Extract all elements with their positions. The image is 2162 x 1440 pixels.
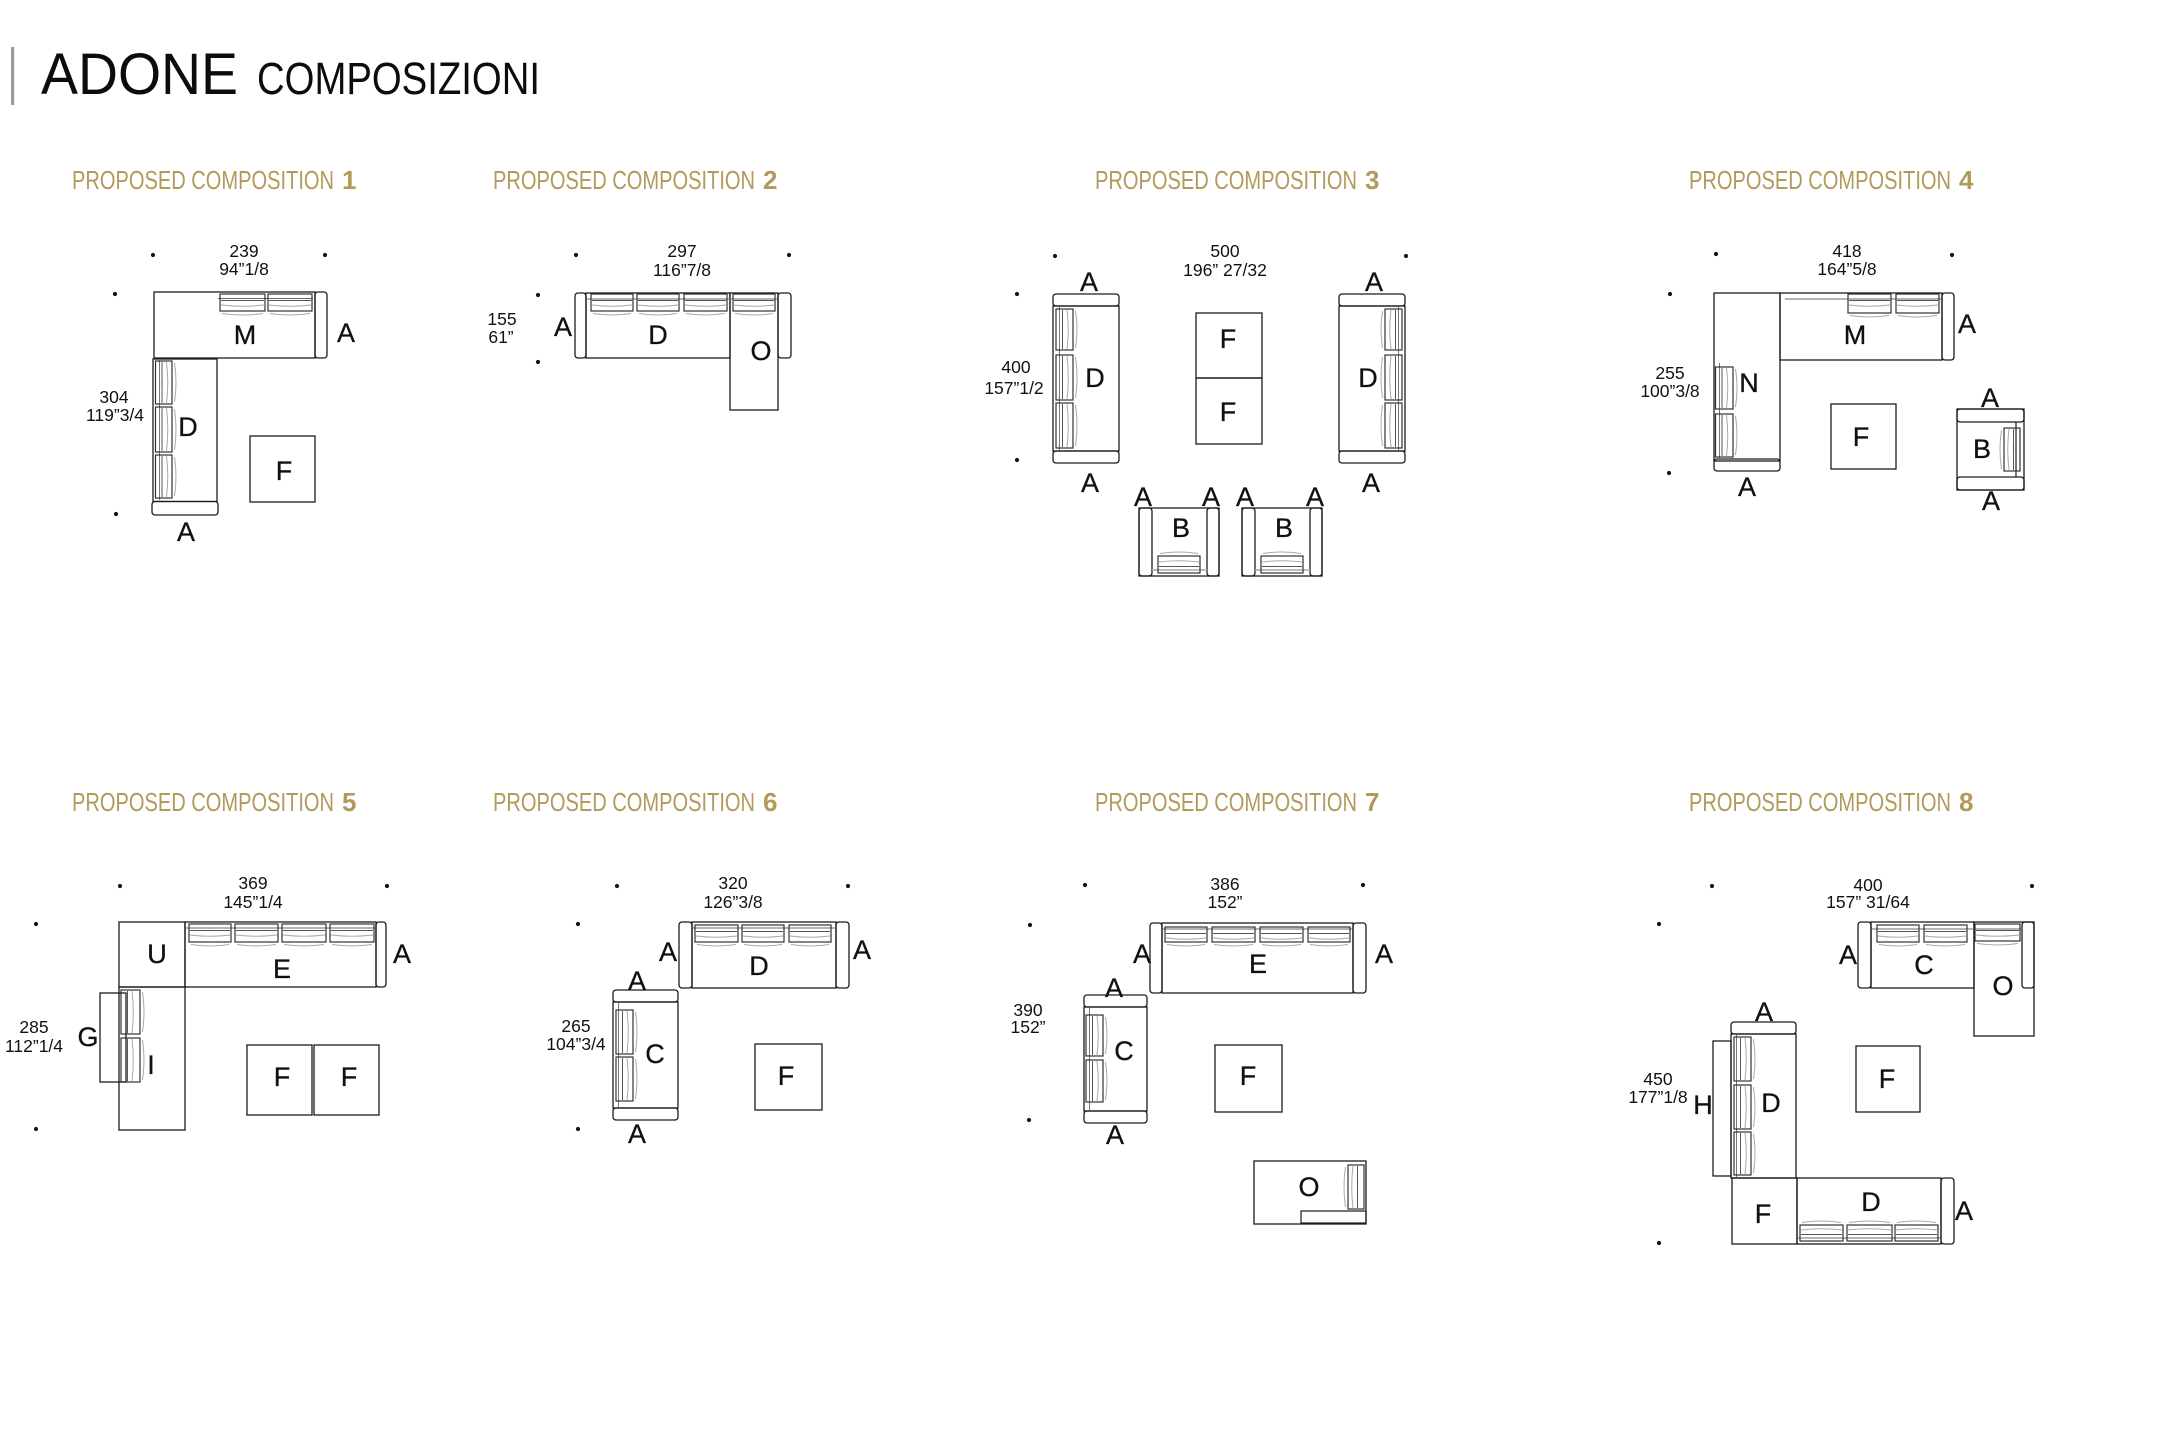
svg-text:61”: 61” bbox=[488, 327, 513, 347]
svg-text:255: 255 bbox=[1655, 363, 1684, 383]
svg-text:265: 265 bbox=[561, 1016, 590, 1036]
svg-text:A: A bbox=[1958, 309, 1976, 339]
svg-text:5: 5 bbox=[342, 787, 356, 817]
svg-text:PROPOSED COMPOSITION: PROPOSED COMPOSITION bbox=[72, 165, 334, 195]
svg-text:A: A bbox=[1981, 383, 1999, 413]
svg-text:386: 386 bbox=[1210, 874, 1239, 894]
svg-text:F: F bbox=[778, 1061, 795, 1091]
svg-text:104”3/4: 104”3/4 bbox=[546, 1034, 606, 1054]
svg-text:D: D bbox=[749, 951, 769, 981]
svg-text:D: D bbox=[178, 412, 198, 442]
svg-text:196” 27/32: 196” 27/32 bbox=[1183, 260, 1267, 280]
svg-text:F: F bbox=[1220, 324, 1237, 354]
svg-text:A: A bbox=[393, 939, 411, 969]
svg-text:A: A bbox=[1755, 997, 1773, 1027]
svg-text:PROPOSED COMPOSITION: PROPOSED COMPOSITION bbox=[1095, 787, 1357, 817]
svg-text:112”1/4: 112”1/4 bbox=[5, 1036, 63, 1056]
svg-text:A: A bbox=[1105, 973, 1123, 1003]
svg-text:B: B bbox=[1172, 513, 1190, 543]
svg-text:D: D bbox=[1861, 1187, 1881, 1217]
svg-text:A: A bbox=[1982, 486, 2000, 516]
svg-text:COMPOSIZIONI: COMPOSIZIONI bbox=[257, 53, 540, 104]
svg-text:PROPOSED COMPOSITION: PROPOSED COMPOSITION bbox=[1689, 165, 1951, 195]
svg-text:ADONE: ADONE bbox=[41, 42, 238, 107]
svg-text:D: D bbox=[1761, 1088, 1781, 1118]
svg-text:F: F bbox=[341, 1062, 358, 1092]
svg-text:126”3/8: 126”3/8 bbox=[703, 892, 762, 912]
svg-text:A: A bbox=[853, 935, 871, 965]
svg-text:G: G bbox=[77, 1022, 98, 1052]
svg-text:F: F bbox=[1879, 1064, 1896, 1094]
svg-text:D: D bbox=[1085, 363, 1105, 393]
svg-text:F: F bbox=[276, 456, 293, 486]
svg-text:6: 6 bbox=[763, 787, 777, 817]
svg-text:239: 239 bbox=[229, 241, 258, 261]
svg-text:116”7/8: 116”7/8 bbox=[653, 260, 711, 280]
svg-text:F: F bbox=[274, 1062, 291, 1092]
svg-text:418: 418 bbox=[1832, 241, 1861, 261]
svg-text:B: B bbox=[1973, 434, 1991, 464]
svg-text:164”5/8: 164”5/8 bbox=[1817, 259, 1876, 279]
svg-text:157” 31/64: 157” 31/64 bbox=[1826, 892, 1910, 912]
svg-text:I: I bbox=[147, 1050, 155, 1080]
svg-text:PROPOSED COMPOSITION: PROPOSED COMPOSITION bbox=[493, 165, 755, 195]
svg-text:400: 400 bbox=[1001, 357, 1030, 377]
svg-text:155: 155 bbox=[487, 309, 516, 329]
svg-text:A: A bbox=[1955, 1196, 1973, 1226]
svg-text:152”: 152” bbox=[1207, 892, 1242, 912]
svg-text:450: 450 bbox=[1643, 1069, 1672, 1089]
svg-text:F: F bbox=[1853, 422, 1870, 452]
svg-text:500: 500 bbox=[1210, 241, 1239, 261]
svg-text:C: C bbox=[1114, 1036, 1134, 1066]
svg-text:A: A bbox=[659, 937, 677, 967]
svg-text:D: D bbox=[1358, 363, 1378, 393]
svg-text:D: D bbox=[648, 320, 668, 350]
svg-text:A: A bbox=[1133, 939, 1151, 969]
svg-text:A: A bbox=[1080, 267, 1098, 297]
svg-text:94”1/8: 94”1/8 bbox=[219, 259, 269, 279]
svg-text:E: E bbox=[273, 954, 291, 984]
svg-text:100”3/8: 100”3/8 bbox=[1640, 381, 1699, 401]
svg-text:N: N bbox=[1739, 368, 1759, 398]
svg-text:A: A bbox=[1839, 940, 1857, 970]
svg-text:A: A bbox=[1134, 482, 1152, 512]
svg-text:A: A bbox=[1081, 468, 1099, 498]
svg-text:A: A bbox=[1306, 482, 1324, 512]
svg-text:A: A bbox=[628, 1119, 646, 1149]
svg-text:320: 320 bbox=[718, 873, 747, 893]
svg-text:A: A bbox=[1202, 482, 1220, 512]
svg-text:E: E bbox=[1249, 949, 1267, 979]
svg-text:285: 285 bbox=[19, 1017, 48, 1037]
svg-text:A: A bbox=[1106, 1120, 1124, 1150]
svg-text:119”3/4: 119”3/4 bbox=[86, 405, 144, 425]
svg-text:O: O bbox=[1992, 971, 2013, 1001]
svg-text:PROPOSED COMPOSITION: PROPOSED COMPOSITION bbox=[72, 787, 334, 817]
svg-text:A: A bbox=[1375, 939, 1393, 969]
svg-text:A: A bbox=[1236, 482, 1254, 512]
svg-text:A: A bbox=[1738, 472, 1756, 502]
svg-text:A: A bbox=[554, 312, 572, 342]
svg-text:1: 1 bbox=[342, 165, 356, 195]
svg-text:C: C bbox=[645, 1039, 665, 1069]
svg-text:7: 7 bbox=[1365, 787, 1379, 817]
svg-text:PROPOSED COMPOSITION: PROPOSED COMPOSITION bbox=[493, 787, 755, 817]
svg-text:PROPOSED COMPOSITION: PROPOSED COMPOSITION bbox=[1095, 165, 1357, 195]
svg-text:A: A bbox=[1365, 267, 1383, 297]
svg-text:369: 369 bbox=[238, 873, 267, 893]
svg-text:A: A bbox=[1362, 468, 1380, 498]
svg-text:A: A bbox=[177, 517, 195, 547]
svg-text:A: A bbox=[337, 318, 355, 348]
svg-text:O: O bbox=[750, 336, 771, 366]
svg-text:4: 4 bbox=[1959, 165, 1974, 195]
svg-text:C: C bbox=[1914, 950, 1934, 980]
svg-text:B: B bbox=[1275, 513, 1293, 543]
svg-text:F: F bbox=[1240, 1061, 1257, 1091]
svg-text:177”1/8: 177”1/8 bbox=[1628, 1087, 1687, 1107]
svg-text:H: H bbox=[1693, 1090, 1713, 1120]
svg-text:297: 297 bbox=[667, 241, 696, 261]
svg-text:M: M bbox=[1844, 320, 1867, 350]
svg-text:F: F bbox=[1755, 1199, 1772, 1229]
svg-text:U: U bbox=[147, 939, 167, 969]
svg-text:A: A bbox=[628, 966, 646, 996]
svg-text:8: 8 bbox=[1959, 787, 1973, 817]
svg-text:304: 304 bbox=[99, 387, 128, 407]
svg-text:O: O bbox=[1298, 1172, 1319, 1202]
svg-text:F: F bbox=[1220, 397, 1237, 427]
svg-text:PROPOSED COMPOSITION: PROPOSED COMPOSITION bbox=[1689, 787, 1951, 817]
svg-text:152”: 152” bbox=[1010, 1017, 1045, 1037]
svg-text:145”1/4: 145”1/4 bbox=[223, 892, 283, 912]
svg-text:3: 3 bbox=[1365, 165, 1379, 195]
svg-text:2: 2 bbox=[763, 165, 777, 195]
svg-text:M: M bbox=[234, 320, 257, 350]
svg-text:157”1/2: 157”1/2 bbox=[984, 378, 1043, 398]
